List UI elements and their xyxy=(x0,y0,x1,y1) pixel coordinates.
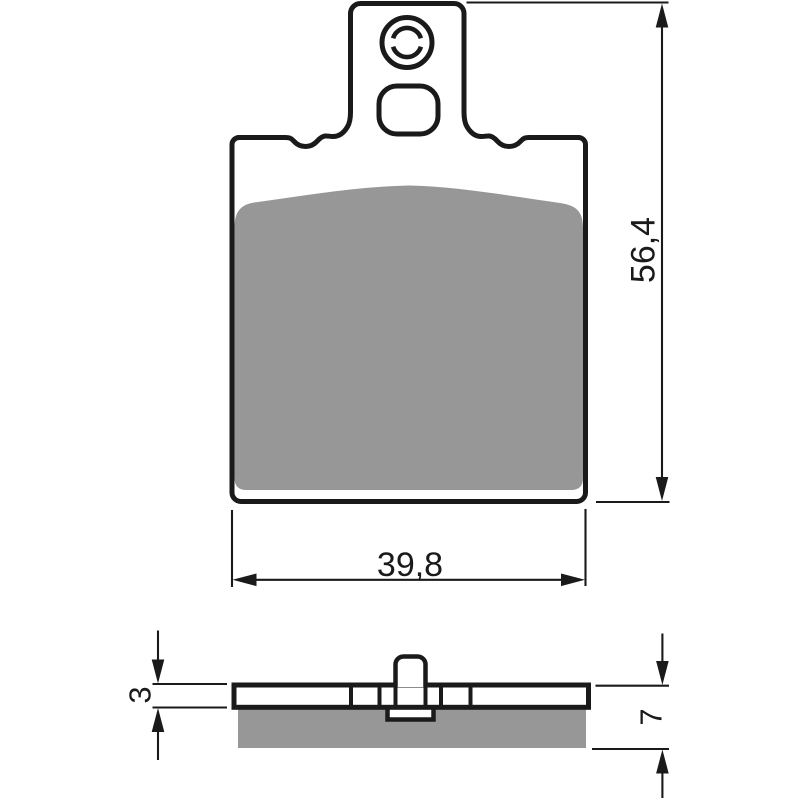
svg-text:39,8: 39,8 xyxy=(377,546,443,584)
svg-text:3: 3 xyxy=(123,686,158,703)
svg-text:56,4: 56,4 xyxy=(625,217,663,283)
svg-text:7: 7 xyxy=(634,708,669,725)
